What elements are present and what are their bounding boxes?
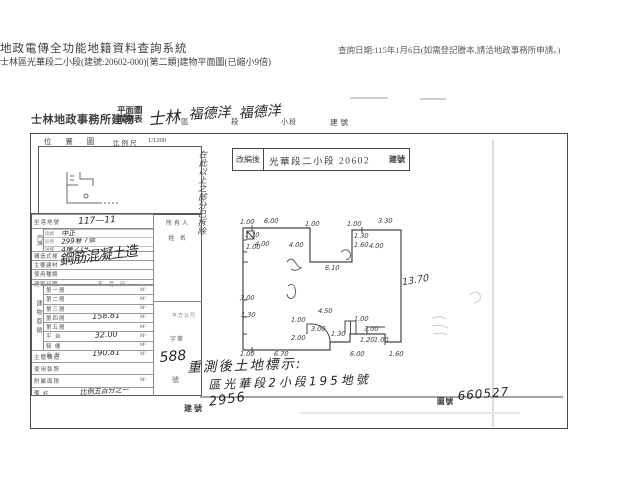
- dimension-label: 1.00: [291, 316, 306, 324]
- dimension-label: 6.10: [325, 264, 340, 272]
- area-row: 騎 樓 M²: [44, 341, 153, 350]
- area-row-unit: M²: [140, 343, 153, 348]
- bottom-building-no-label: 建號: [184, 403, 204, 414]
- dimension-label: 1.30: [331, 330, 346, 338]
- area-row-label: 騎 樓: [44, 342, 72, 350]
- permit-cell: 平方公尺 字第 588 號: [153, 301, 202, 396]
- dimension-label: 4.00: [369, 242, 384, 250]
- info-table: 所有人 姓 名 平方公尺 字第 588 號 坐落地號 117—11 門牌 街路 …: [31, 213, 202, 396]
- attr-row: 使用種類: [32, 269, 153, 278]
- title-stack: 平面圖 成果表: [117, 106, 143, 124]
- dimension-label: 3.30: [378, 217, 393, 225]
- stamp-value: 光華段二小段 20602: [264, 151, 389, 167]
- area-row-unit: M²: [140, 315, 153, 320]
- area-row-value: [72, 305, 140, 309]
- lower-row: 備 註 比例五百分之一: [32, 387, 153, 399]
- dimension-label: 1.00: [305, 220, 320, 228]
- unit-note: 平方公尺: [172, 312, 196, 319]
- area-row: 第二層 M²: [44, 294, 153, 303]
- dimension-label: 3.00: [364, 325, 379, 333]
- area-row: 第四層 158.81 M²: [44, 313, 153, 322]
- lower-row-value: [68, 353, 140, 357]
- site-label: 坐落地號: [32, 218, 78, 226]
- section-handwritten: 福德洋: [188, 102, 231, 124]
- door-row-handwritten: 中正: [61, 229, 76, 237]
- area-row-label: 第三層: [44, 305, 72, 313]
- permit-suffix: 號: [172, 375, 179, 385]
- owner-label-top: 所有人: [154, 218, 202, 227]
- dimension-label: 1.00: [354, 315, 369, 323]
- location-map-box: [38, 146, 202, 215]
- dimension-label: 1.00: [374, 336, 389, 344]
- lower-row-value: [68, 365, 140, 369]
- lower-row-unit: M²: [140, 378, 153, 383]
- door-row-label: 段巷: [44, 239, 61, 245]
- lower-row-label: 備 註: [32, 389, 68, 397]
- area-row-value: 32.00: [72, 331, 140, 340]
- area-row-label: 第二層: [44, 295, 72, 303]
- area-row-unit: M²: [140, 334, 153, 339]
- scanned-document-page: 地政電傳全功能地籍資料查詢系統 查詢日期:115年1月6日(如需登記謄本,請洽地…: [0, 0, 640, 480]
- dimension-label: 1.60: [389, 350, 404, 358]
- area-row-unit: M²: [140, 297, 153, 302]
- document-descriptor-line: 士林區光華段二小段(建號:20602-000)[第二類]建物平面圖(已縮小9倍): [0, 55, 271, 68]
- subsection-handwritten: 福德洋: [238, 100, 281, 123]
- area-row: 第三層 M²: [44, 304, 153, 313]
- area-row-unit: M²: [140, 325, 153, 330]
- door-row-label: 街路: [44, 231, 61, 237]
- door-label: 門牌: [32, 229, 44, 252]
- lower-row: 附屬面積 M²: [32, 374, 153, 386]
- dimension-label: 3.00: [311, 325, 326, 333]
- permit-number: 588: [159, 348, 187, 366]
- dimension-label: 4.50: [318, 307, 333, 315]
- dimension-label: 4.00: [289, 241, 304, 249]
- area-block: 建物面積 第一層 M² 第二層 M²: [32, 284, 153, 351]
- stamp-suffix: 建號: [389, 154, 409, 165]
- area-rows: 第一層 M² 第二層 M² 第三層 M²: [44, 285, 153, 351]
- area-row-value: [72, 324, 140, 328]
- dimension-label: 1.60: [354, 241, 369, 249]
- site-value: 117—11: [78, 215, 116, 227]
- permit-prefix: 字第: [170, 334, 184, 343]
- lower-rows: 主體構造 使用執照 附屬面積 M² 備 註: [32, 350, 153, 399]
- subsection-label: 小段: [281, 117, 297, 127]
- lower-row-label: 使用執照: [32, 365, 68, 373]
- area-row-value: 158.81: [72, 313, 140, 322]
- area-row-label: 平 台: [44, 332, 72, 340]
- lower-row-value: [68, 377, 140, 381]
- stamp-label: 改編後: [233, 149, 264, 170]
- right-empty-cell: [153, 249, 202, 301]
- dimension-label: 6.00: [264, 217, 279, 225]
- bottom-map-no-label: 圖號: [437, 396, 454, 407]
- dimension-label: 1.00: [347, 220, 362, 228]
- location-map-scale-value: 1/1200: [148, 137, 166, 144]
- area-row-label: 第四層: [44, 314, 72, 322]
- renumber-stamp: 改編後 光華段二小段 20602 建號: [232, 148, 410, 171]
- dimension-label: 1.20: [360, 336, 375, 344]
- dimension-label: 2.00: [291, 334, 306, 342]
- dimension-label: 1.30: [245, 231, 260, 239]
- site-row: 坐落地號 117—11: [32, 214, 153, 229]
- owner-cell: 所有人 姓 名: [153, 214, 202, 249]
- query-date-note: 查詢日期:115年1月6日(如需登記謄本,請洽地政事務所申請。): [338, 44, 560, 56]
- area-row-label: 第一層: [44, 286, 72, 294]
- dimension-label: 4.00: [255, 240, 270, 248]
- area-row: 第五層 M²: [44, 322, 153, 331]
- lower-row-label: 附屬面積: [32, 377, 68, 385]
- door-row: 街路 中正: [44, 229, 153, 237]
- section-label: 段: [231, 116, 239, 127]
- dimension-label: 1.30: [241, 311, 256, 319]
- dimension-label: 1.30: [354, 232, 369, 240]
- area-row-label: 第五層: [44, 323, 72, 331]
- area-row-unit: M²: [140, 306, 153, 311]
- lower-row-label: 主體構造: [32, 353, 68, 361]
- area-row-value: [72, 342, 140, 346]
- area-vertical-label: 建物面積: [32, 285, 44, 351]
- district-label: 區: [181, 116, 189, 127]
- lower-row: 主體構造: [32, 350, 153, 362]
- owner-label-bottom: 姓 名: [154, 233, 202, 242]
- area-row-unit: M²: [140, 288, 153, 293]
- lower-row: 使用執照: [32, 362, 153, 374]
- area-row-value: [72, 296, 140, 300]
- title-stack-bottom: 成果表: [117, 115, 143, 124]
- district-handwritten: 士林: [147, 103, 181, 130]
- area-row: 平 台 32.00 M²: [44, 331, 153, 340]
- dimension-label: 3.00: [240, 294, 255, 302]
- dimension-label: 1.00: [240, 218, 255, 226]
- lower-row-value: 比例五百分之一: [68, 387, 140, 399]
- attr-row-label: 使用種類: [32, 270, 70, 278]
- dimension-label: 6.00: [350, 350, 365, 358]
- system-title: 地政電傳全功能地籍資料查詢系統: [0, 40, 188, 56]
- area-row: 第一層 M²: [44, 285, 153, 294]
- area-row-value: [72, 287, 140, 291]
- building-no-label: 建號: [330, 117, 351, 128]
- door-row-handwritten: 299巷 7號: [61, 237, 96, 245]
